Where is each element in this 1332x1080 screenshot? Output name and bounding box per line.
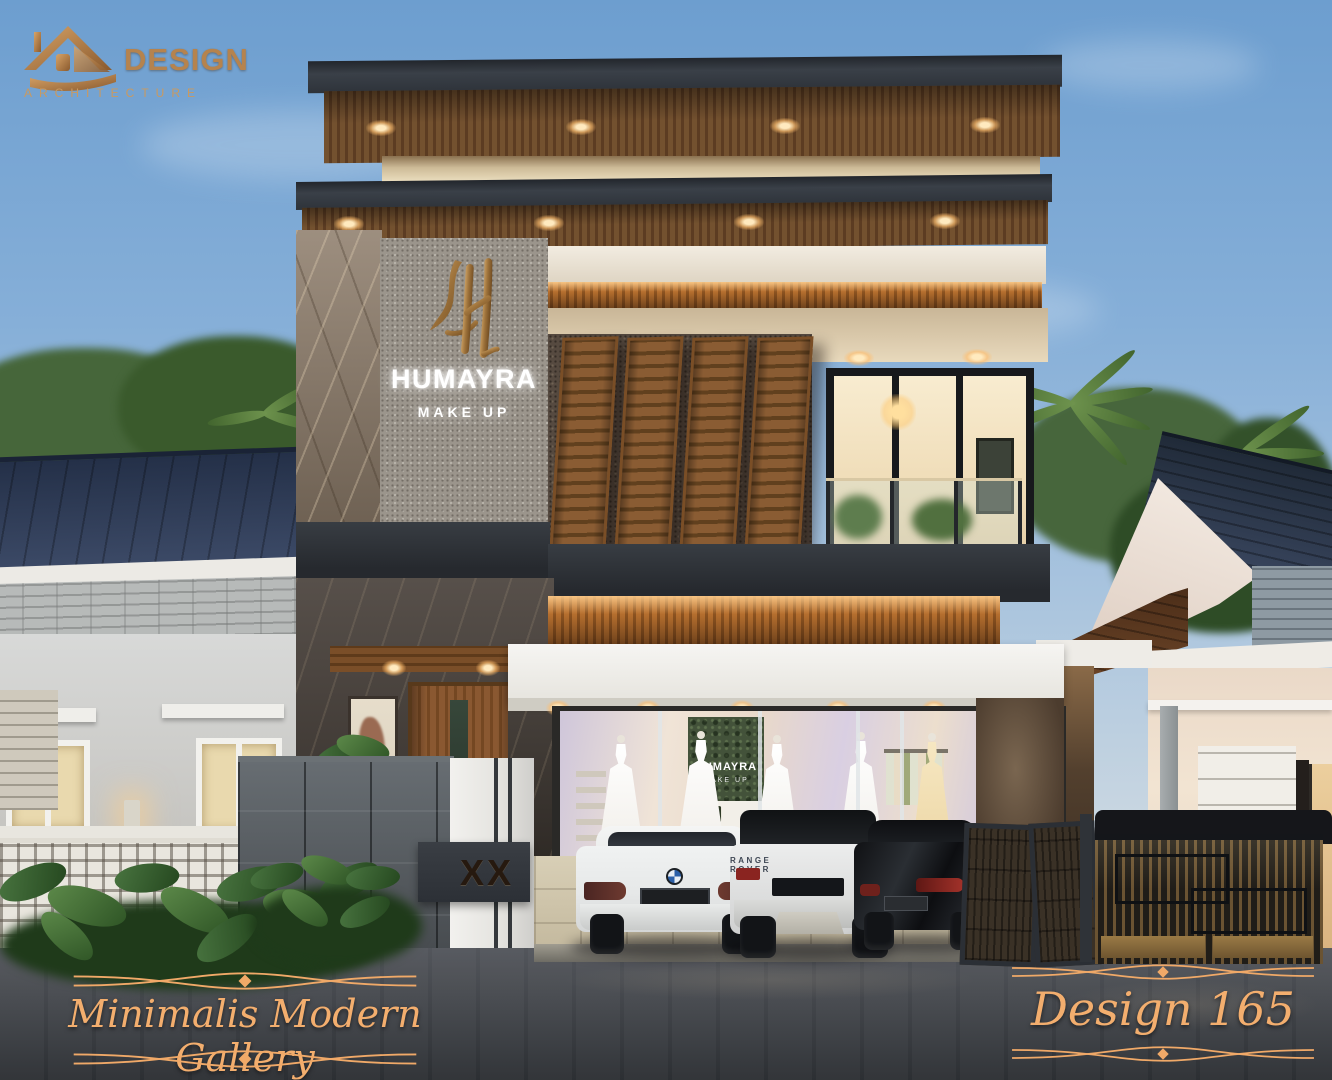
textured-band [1252, 566, 1332, 650]
house-number: XX [460, 852, 514, 894]
balcony-band-right [548, 544, 1050, 602]
brand-name: DESIGN [124, 42, 249, 78]
building-sign-name: HUMAYRA [380, 364, 548, 395]
ceiling-light [844, 350, 874, 366]
flourish-icon [1008, 1042, 1318, 1066]
open-gate-panel [960, 823, 1041, 968]
wheel [740, 916, 776, 958]
stone-veneer [0, 690, 58, 810]
chandelier-glow [880, 394, 916, 430]
road-reflection [560, 960, 980, 1000]
taillight [860, 884, 880, 896]
license-plate [772, 878, 844, 896]
license-plate [884, 896, 928, 911]
gate-base-panel [1213, 936, 1313, 958]
cloud [1040, 40, 1260, 90]
wheel [864, 912, 894, 950]
gate-post [1080, 814, 1092, 962]
brand-wall: HUMAYRA MAKE UP [380, 238, 548, 532]
downlight [930, 213, 960, 229]
bmw-roundel-icon [666, 868, 683, 885]
glass-balustrade [826, 478, 1022, 547]
wheel [590, 914, 624, 954]
caption-left: Minimalis Modern Gallery [14, 966, 476, 1076]
fence-plants [242, 856, 432, 976]
entry-downlight [476, 660, 500, 676]
backlit-slat-band-lower [548, 596, 1000, 648]
skid-plate [772, 912, 844, 934]
downlight [970, 117, 1000, 133]
plant-reflection [912, 499, 972, 541]
roof-soffit-top [324, 85, 1060, 163]
downlight [566, 119, 596, 135]
palm-tree [1068, 398, 1078, 408]
neighbor-gate [1095, 834, 1323, 964]
ground-canopy [508, 644, 1064, 702]
architectural-render: HUMAYRA MAKE UP [0, 0, 1332, 1080]
plant-reflection [834, 495, 882, 539]
palm-tree [262, 408, 270, 416]
house-number-panel: XX [418, 842, 530, 902]
flourish-icon [14, 968, 476, 994]
fence-beam [0, 826, 252, 838]
caption-right: Design 165 [1002, 958, 1324, 1070]
downlight [366, 120, 396, 136]
balcony-band-left [296, 522, 550, 580]
taillight [584, 882, 626, 900]
downlight [770, 118, 800, 134]
white-shelf [540, 246, 1046, 284]
flourish-icon [1008, 960, 1318, 984]
brick-band [0, 576, 310, 642]
caption-right-text: Design 165 [1002, 982, 1324, 1036]
taillight [916, 878, 964, 892]
window-ledge [162, 704, 284, 718]
backlit-slat-band-upper [545, 282, 1042, 310]
design-architecture-logo: DESIGN ARCHITECTURE [18, 16, 258, 108]
humayra-logo-icon [418, 256, 506, 364]
brand-subtitle: ARCHITECTURE [24, 86, 202, 100]
ceiling-light [962, 349, 992, 365]
taillight [736, 868, 760, 880]
flourish-icon [14, 1046, 476, 1072]
downlight [734, 214, 764, 230]
building-sign-tagline: MAKE UP [380, 404, 548, 420]
entry-downlight [382, 660, 406, 676]
downlight [534, 215, 564, 231]
gate-base-panel [1101, 936, 1205, 958]
marble-column [296, 230, 382, 528]
